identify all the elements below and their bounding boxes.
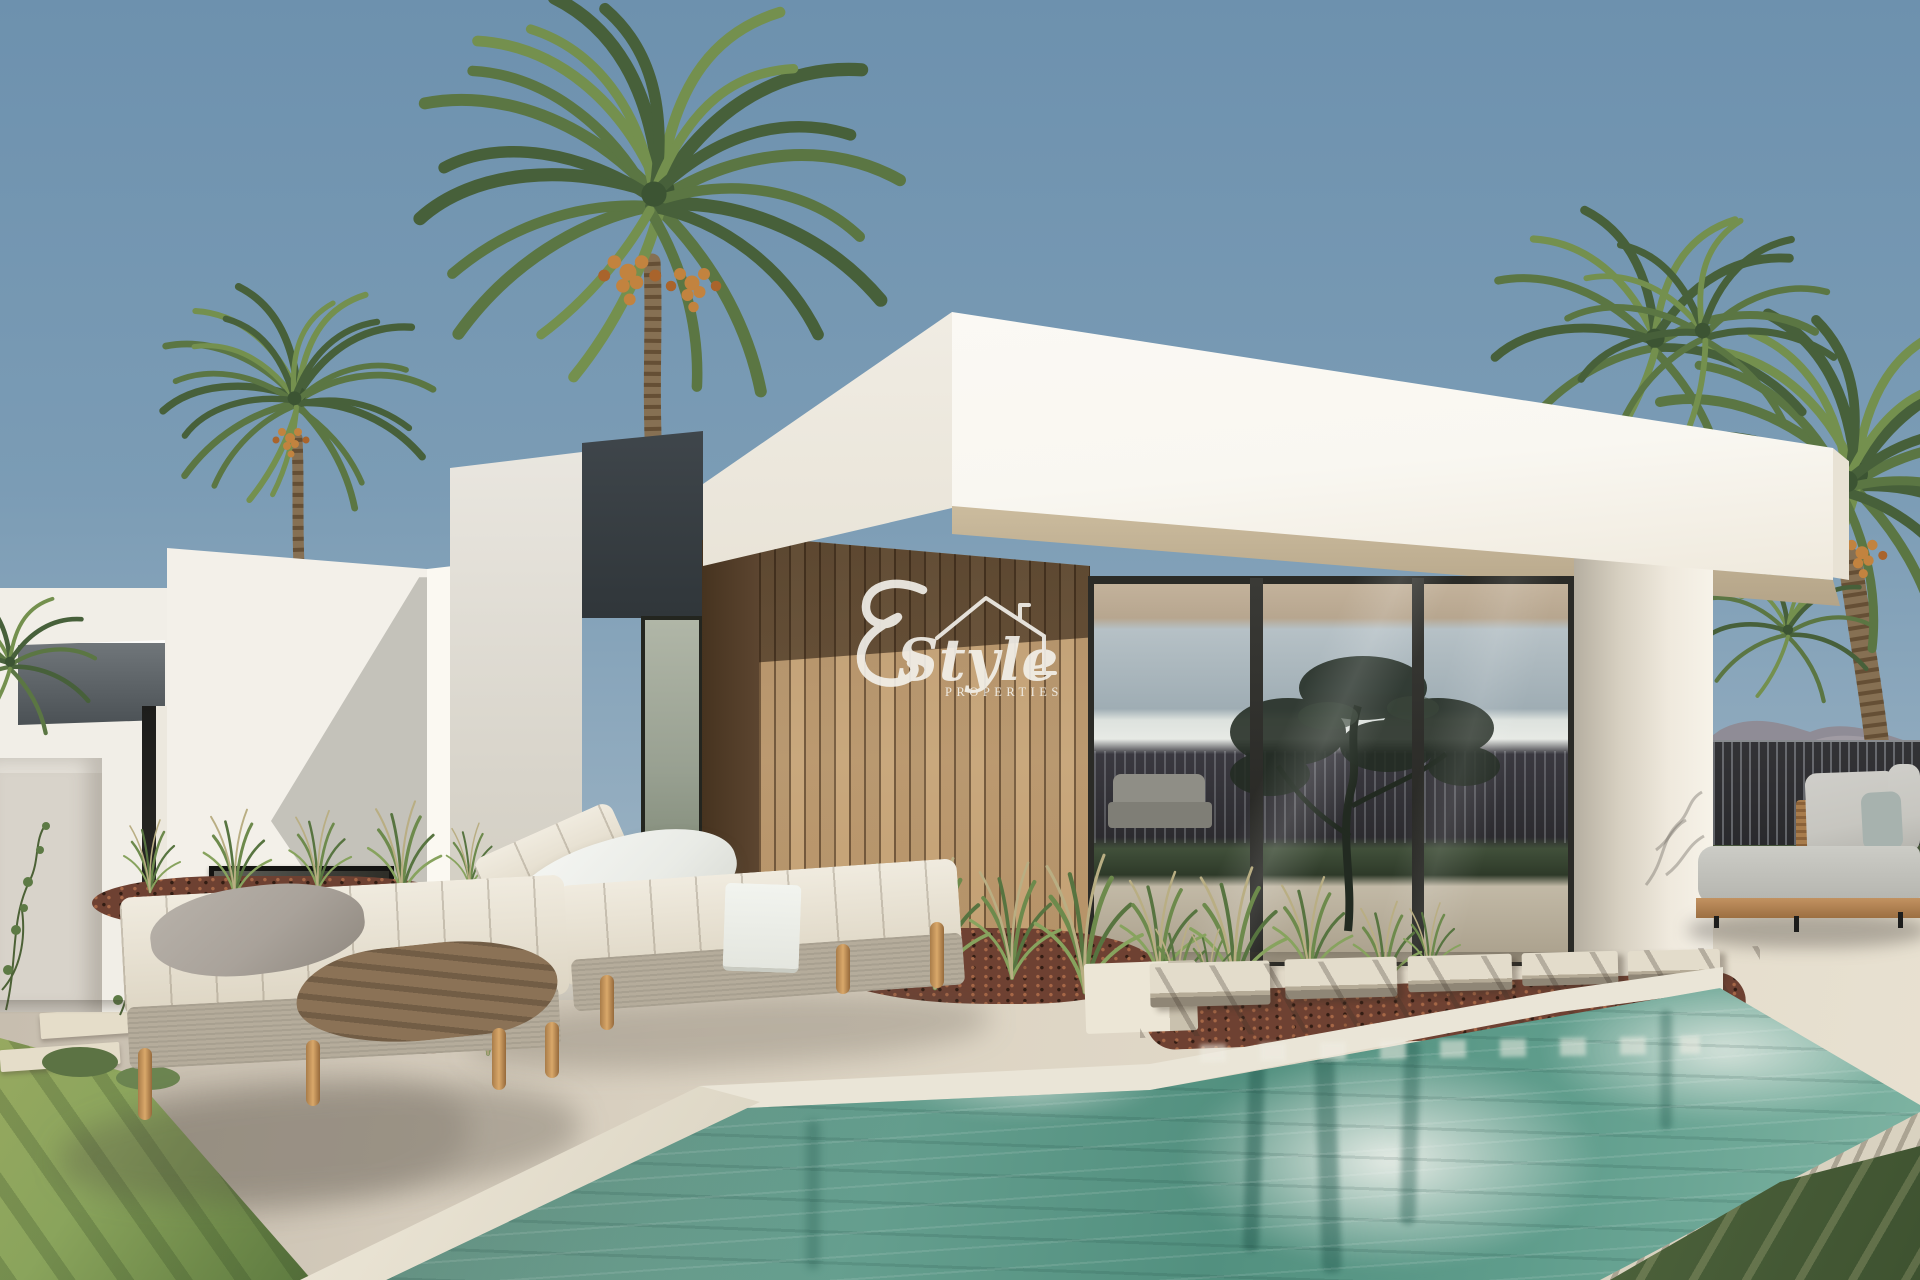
lounger2-leg [600, 975, 614, 1030]
lounger2-leg [836, 944, 850, 994]
lounger1-leg [492, 1028, 506, 1090]
lounger1-leg [306, 1040, 320, 1106]
lounger1-leg [545, 1022, 559, 1078]
villa-exterior-render: Style PROPERTIES [0, 0, 1920, 1280]
lounger2-towel [722, 883, 801, 974]
lounger2-leg [930, 922, 944, 988]
lounger1-leg [138, 1048, 152, 1120]
